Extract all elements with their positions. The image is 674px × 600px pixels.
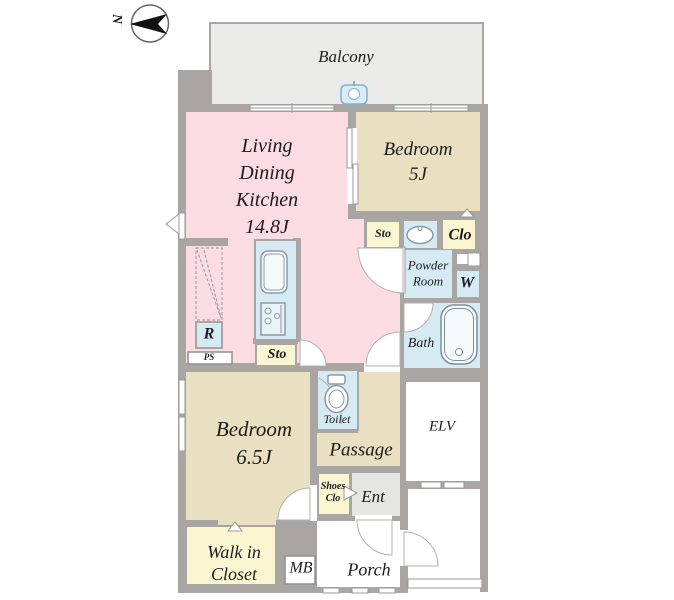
bedroom5-label: Bedroom 5J [384,137,453,187]
floor-plan-drawing [0,0,674,600]
walk-in-closet-line1: Walk in [207,541,261,563]
ldk-label: Living Dining Kitchen 14.8J [236,133,298,241]
faucet-icon [341,81,367,104]
passage-label: Passage [329,439,392,464]
shoes-line1: Shoes [321,481,345,493]
shoes-line2: Clo [321,493,345,505]
toilet-label: Toilet [324,412,351,428]
stove-icon [261,303,285,335]
powder-room-label: Powder Room [408,258,448,289]
entrance-label: Ent [361,486,385,508]
pipe-space-label: PS [204,352,215,364]
bedroom5-line2: 5J [384,162,453,187]
shoes-closet-label: Shoes Clo [321,481,345,505]
balcony-label: Balcony [318,46,374,68]
porch-label: Porch [347,558,390,581]
walk-in-closet-line2: Closet [207,563,261,585]
refrigerator-label: R [204,325,215,346]
powder-line1: Powder [408,258,448,274]
elevator-door [421,482,441,488]
bath-label: Bath [408,335,434,353]
ldk-line3: Kitchen [236,187,298,214]
bedroom65-line1: Bedroom [216,415,292,443]
floor-plan: N Balcony Living Dining Kitchen 14.8J Be… [0,0,674,600]
closet-label: Clo [448,226,471,247]
elevator-label: ELV [429,417,455,437]
storage-hall-label: Sto [375,226,391,242]
bedroom5-line1: Bedroom [384,137,453,162]
powder-line2: Room [408,273,448,289]
washbasin-icon [407,227,433,244]
bedroom65-label: Bedroom 6.5J [216,415,292,471]
compass-icon [130,5,169,42]
meter-box-label: MB [289,559,312,580]
ldk-line1: Living [236,133,298,160]
ldk-line2: Dining [236,160,298,187]
storage-kitchen-label: Sto [268,346,287,364]
bathtub-icon [441,305,477,364]
ldk-line4: 14.8J [236,214,298,241]
corridor-railing [408,579,482,588]
front-door-arc [404,532,438,566]
vent-window-marker [166,214,179,234]
walk-in-closet-label: Walk in Closet [207,541,261,585]
compass-north-label: N [107,14,125,24]
washer-label: W [460,274,474,295]
toilet-icon [325,375,348,413]
bedroom65-line2: 6.5J [216,443,292,471]
kitchen-sink-icon [261,251,287,293]
